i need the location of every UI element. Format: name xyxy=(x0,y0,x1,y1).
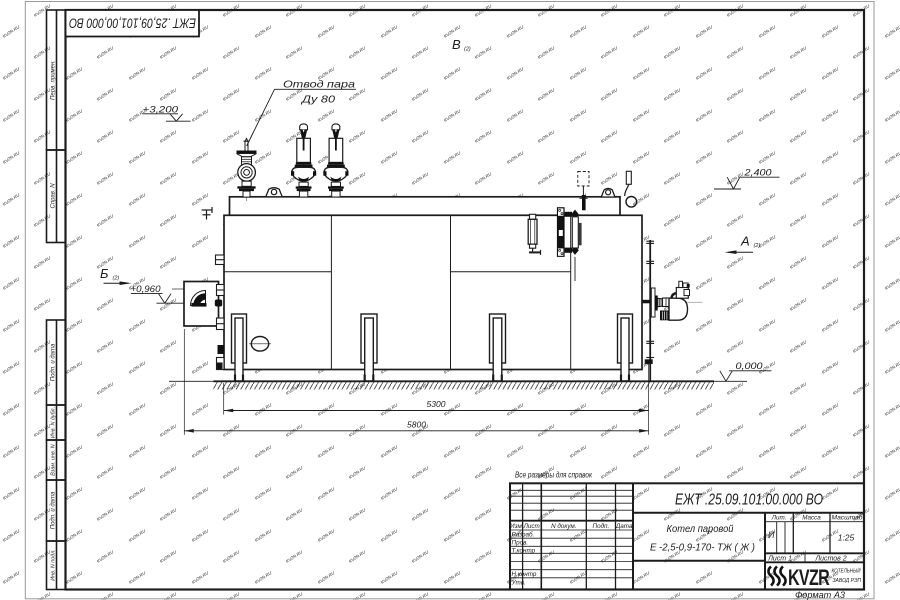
svg-text:Разраб.: Разраб. xyxy=(512,531,535,539)
svg-text:ЗАВОД РЭП: ЗАВОД РЭП xyxy=(833,578,862,584)
svg-text:В: В xyxy=(452,37,461,52)
svg-text:Н.контр: Н.контр xyxy=(512,571,537,578)
svg-text:KVZR: KVZR xyxy=(788,565,830,590)
svg-text:2,400: 2,400 xyxy=(743,168,771,178)
svg-text:А: А xyxy=(740,234,750,249)
svg-text:Ду 80: Ду 80 xyxy=(301,94,335,106)
svg-text:Лит.: Лит. xyxy=(771,515,787,522)
svg-text:Инв. N дубл.: Инв. N дубл. xyxy=(51,407,57,438)
svg-text:5800: 5800 xyxy=(407,419,426,429)
svg-text:Подп. и дата: Подп. и дата xyxy=(51,491,57,529)
svg-text:Е -2,5-0,9-170- ТЖ ( Ж ): Е -2,5-0,9-170- ТЖ ( Ж ) xyxy=(650,542,755,554)
svg-text:Перв. примен.: Перв. примен. xyxy=(51,60,57,100)
svg-text:(2): (2) xyxy=(754,243,761,249)
svg-text:(2): (2) xyxy=(464,47,471,53)
svg-text:Лист: Лист xyxy=(523,523,540,530)
svg-text:Справ. N: Справ. N xyxy=(51,183,57,209)
svg-text:5300: 5300 xyxy=(427,399,446,409)
svg-text:Лист 1: Лист 1 xyxy=(767,555,792,562)
svg-text:Масштаб: Масштаб xyxy=(832,514,863,522)
svg-text:Т.контр: Т.контр xyxy=(512,547,536,554)
svg-text:Листов 2: Листов 2 xyxy=(814,555,846,562)
svg-text:0,000: 0,000 xyxy=(736,361,763,371)
svg-text:1:25: 1:25 xyxy=(838,533,855,543)
svg-text:Утв.: Утв. xyxy=(511,579,526,586)
svg-text:Инв. N подл.: Инв. N подл. xyxy=(51,549,57,581)
svg-text:Все размеры для справок: Все размеры для справок xyxy=(515,471,592,480)
svg-text:Взам. инв. N: Взам. инв. N xyxy=(51,444,57,476)
svg-text:Дата: Дата xyxy=(615,523,633,530)
svg-text:+3,200: +3,200 xyxy=(143,105,179,115)
svg-text:+0,960: +0,960 xyxy=(131,284,161,294)
svg-text:Подп.: Подп. xyxy=(593,522,610,530)
svg-text:КОТЕЛЬНЫЙ: КОТЕЛЬНЫЙ xyxy=(832,567,861,575)
svg-text:Котел паровой: Котел паровой xyxy=(667,523,734,535)
svg-text:N докум.: N докум. xyxy=(551,522,576,530)
svg-text:ЕЖТ .25,09,101,00,000 ВО: ЕЖТ .25,09,101,00,000 ВО xyxy=(69,16,196,31)
svg-text:ЕЖТ .25.09.101.00.000 ВО: ЕЖТ .25.09.101.00.000 ВО xyxy=(675,492,823,509)
svg-text:И: И xyxy=(768,530,775,540)
svg-text:Подп. и дата: Подп. и дата xyxy=(51,343,57,381)
svg-text:(2): (2) xyxy=(113,276,120,282)
svg-text:Формат А3: Формат А3 xyxy=(795,590,846,600)
svg-text:Отвод пара: Отвод пара xyxy=(283,79,355,91)
svg-text:Изм: Изм xyxy=(510,523,522,530)
svg-text:Б: Б xyxy=(100,266,109,281)
svg-text:Пров.: Пров. xyxy=(512,540,529,547)
svg-text:Масса: Масса xyxy=(802,515,821,522)
